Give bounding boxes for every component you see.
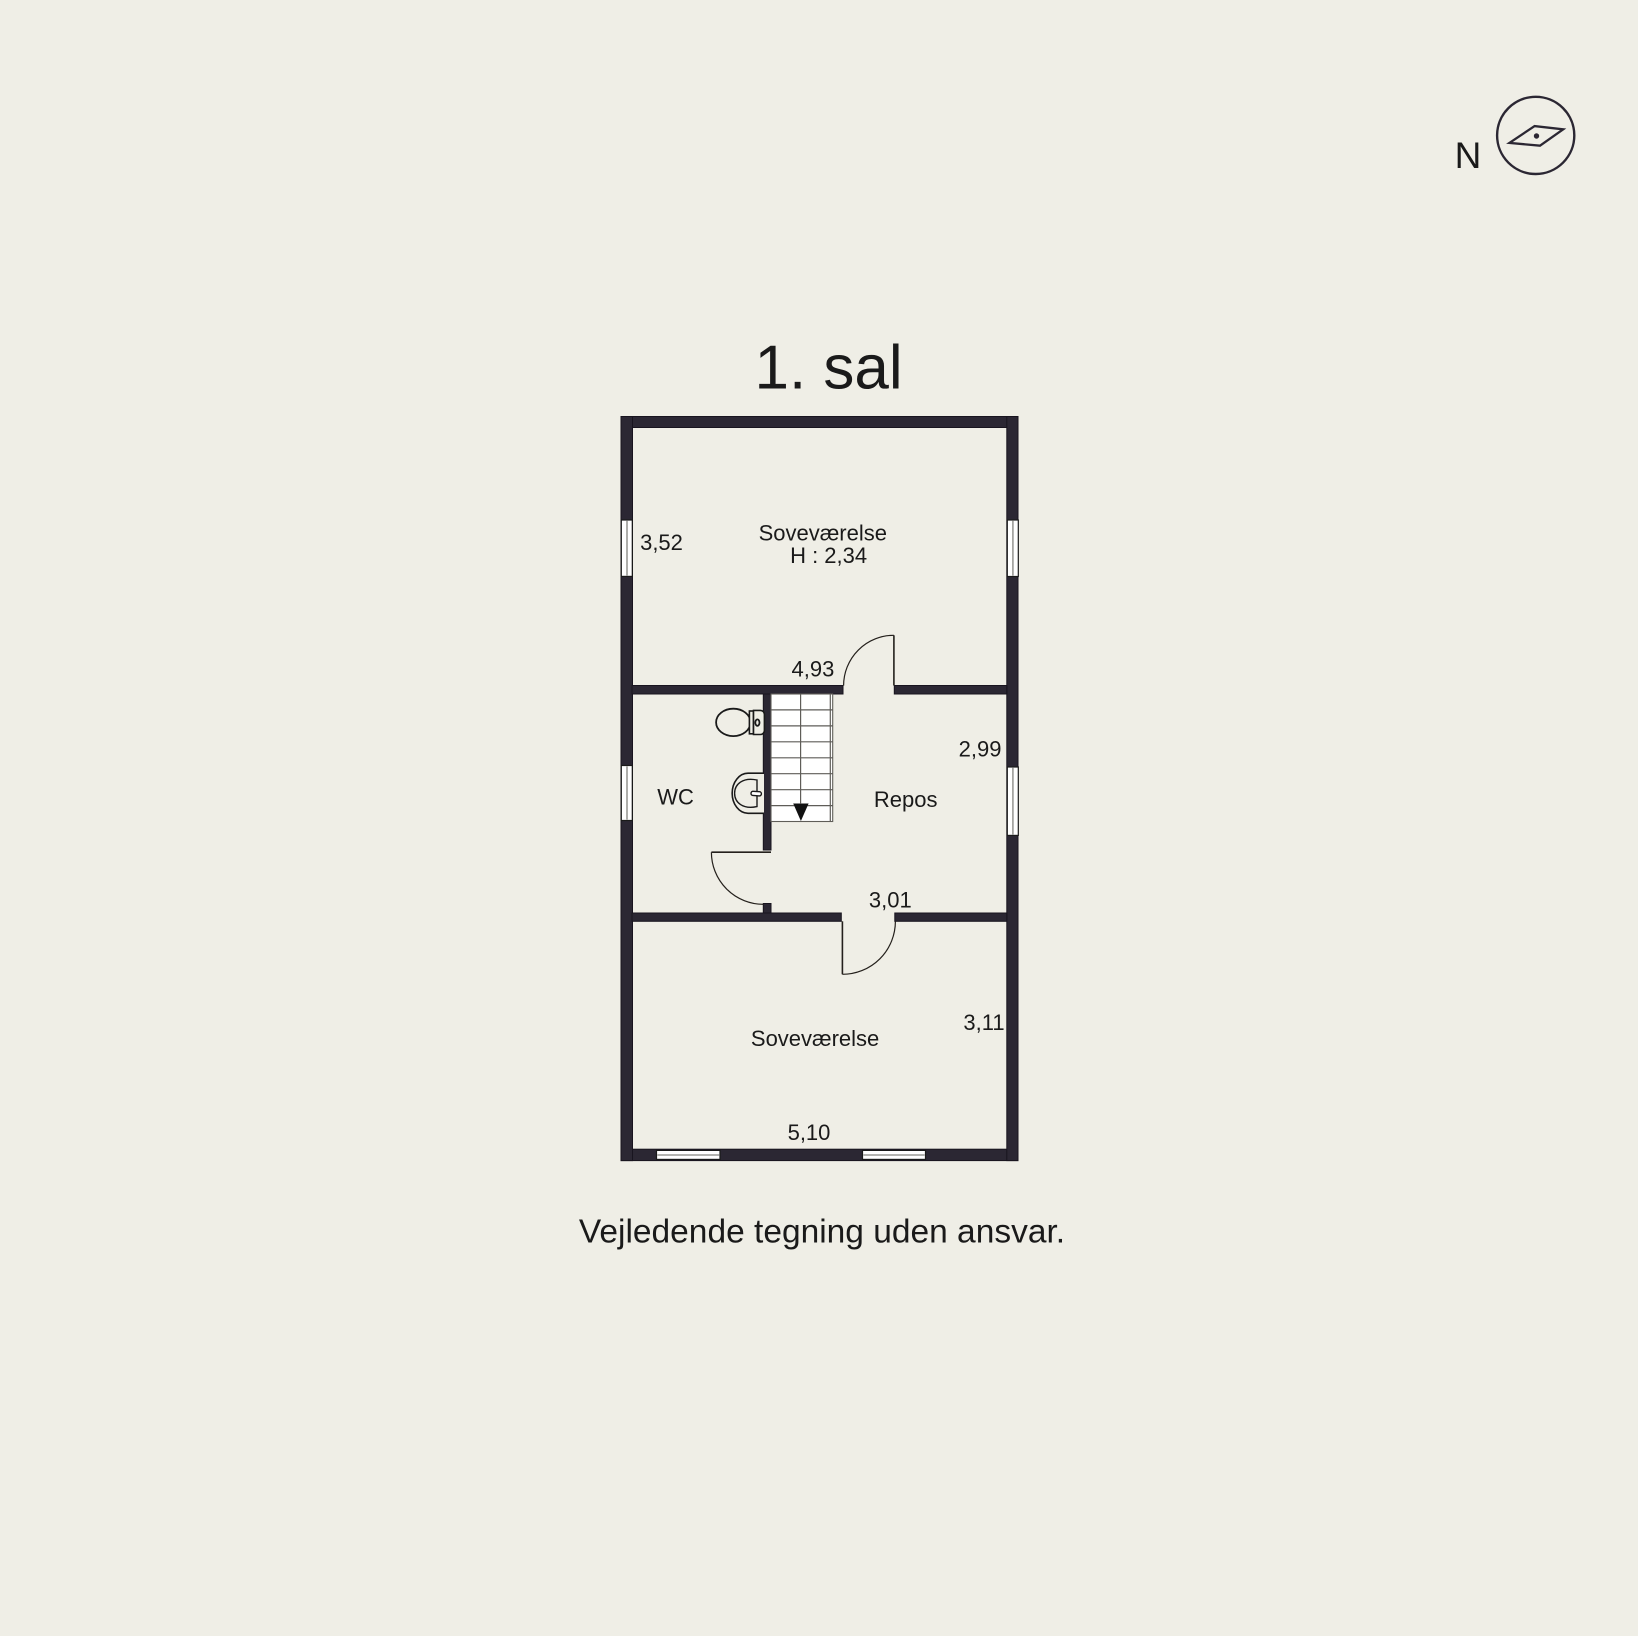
svg-text:WC: WC xyxy=(657,784,694,809)
svg-text:Vejledende tegning uden ansvar: Vejledende tegning uden ansvar. xyxy=(579,1214,1065,1251)
svg-text:Soveværelse: Soveværelse xyxy=(759,520,887,545)
svg-text:3,52: 3,52 xyxy=(640,530,683,555)
svg-text:N: N xyxy=(1455,135,1482,176)
svg-text:3,11: 3,11 xyxy=(963,1010,1004,1035)
svg-text:3,01: 3,01 xyxy=(869,887,912,912)
svg-text:Soveværelse: Soveværelse xyxy=(751,1026,879,1051)
svg-text:4,93: 4,93 xyxy=(791,657,834,682)
svg-text:2,99: 2,99 xyxy=(959,736,1002,761)
svg-text:H : 2,34: H : 2,34 xyxy=(790,543,867,568)
svg-text:1. sal: 1. sal xyxy=(754,334,902,403)
svg-text:Repos: Repos xyxy=(874,787,938,812)
svg-text:5,10: 5,10 xyxy=(788,1120,831,1145)
